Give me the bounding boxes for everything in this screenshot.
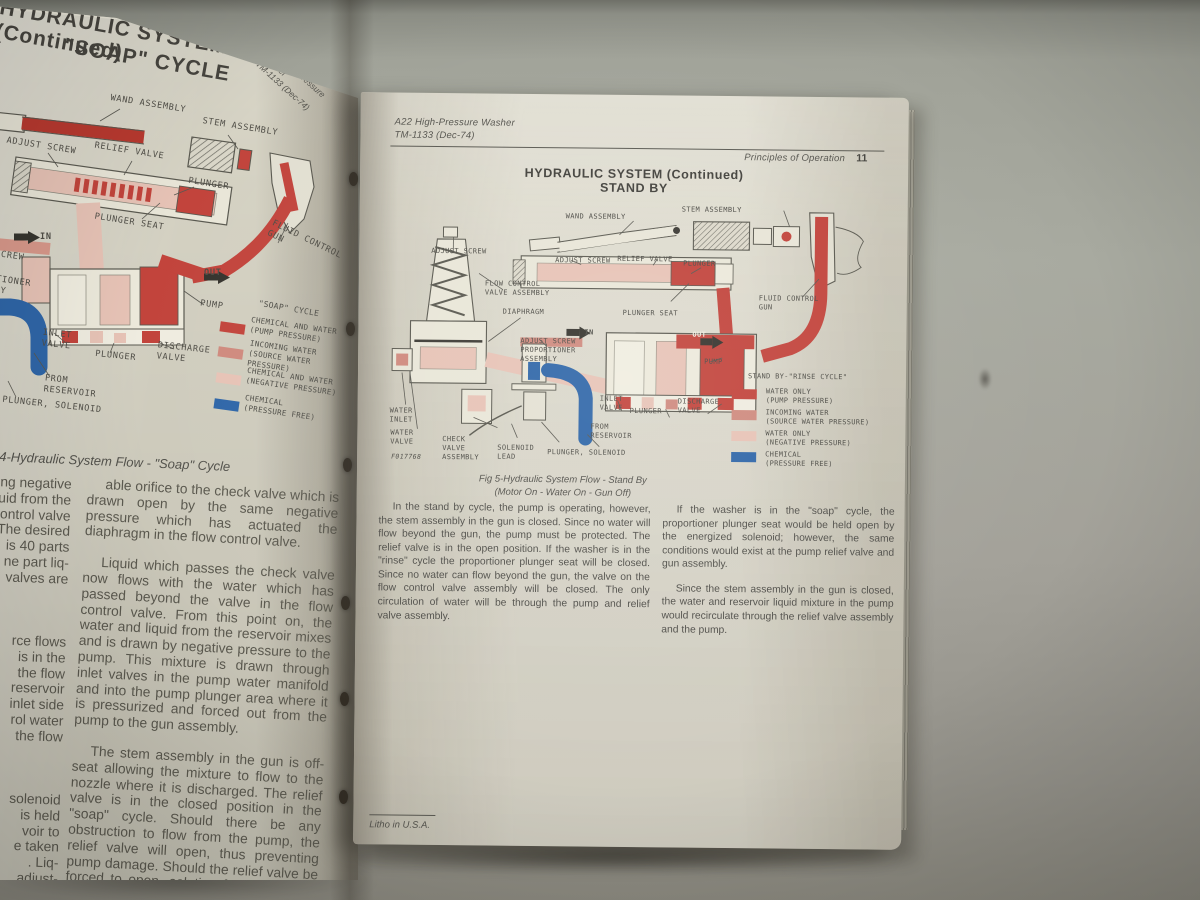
label-in-arrow: IN	[584, 329, 593, 338]
header-model: A22 High-Pressure Washer	[395, 117, 515, 129]
header-section: Principles of Operation	[744, 152, 845, 164]
label-water-valve: WATER VALVE	[390, 428, 413, 446]
left-page: HYDRAULIC SYSTEM (Continued) "SOAP" CYCL…	[0, 0, 358, 880]
legend-chip-mid	[732, 410, 757, 420]
label-stem-assembly: STEM ASSEMBLY	[682, 206, 742, 216]
binding-stitch	[343, 458, 352, 472]
binding-stitch	[346, 322, 355, 336]
figure-code: F017768	[391, 452, 421, 461]
legend-item-chemical: CHEMICAL (PRESSURE FREE)	[765, 450, 833, 470]
legend-item-incoming-water: INCOMING WATER (SOURCE WATER PRESSURE)	[765, 408, 869, 428]
label-inlet-valve: INLET VALVE	[41, 328, 73, 353]
label-inlet-valve: INLET VALVE	[600, 395, 623, 413]
label-water-inlet: WATER INLET	[389, 406, 412, 424]
label-out-arrow: OUT	[204, 268, 222, 279]
label-from-reservoir: FROM RESERVOIR	[590, 423, 632, 442]
right-page: A22 High-Pressure Washer TM-1133 (Dec-74…	[353, 92, 909, 850]
label-pump: PUMP	[704, 358, 723, 367]
label-adjust-screw-proportioner: ADJUST SCREW PROPORTIONER ASSEMBLY	[520, 337, 576, 365]
label-in-arrow: IN	[40, 232, 52, 243]
label-plunger: PLUNGER	[683, 260, 715, 269]
label-flow-control-valve-assembly: FLOW CONTROL VALVE ASSEMBLY	[485, 279, 550, 298]
label-diaphragm: DIAPHRAGM	[503, 308, 545, 318]
manual-photo: HYDRAULIC SYSTEM (Continued) "SOAP" CYCL…	[0, 0, 1200, 900]
page-number: 11	[856, 152, 867, 164]
binding-stitch	[340, 692, 349, 706]
label-plunger-solenoid: PLUNGER, SOLENOID	[547, 448, 626, 458]
right-column1-paragraph: In the stand by cycle, the pump is opera…	[377, 500, 650, 625]
label-check-valve-assembly: CHECK VALVE ASSEMBLY	[442, 435, 479, 463]
label-adjust-screw-relief: ADJUST SCREW	[555, 256, 610, 266]
legend-chip-light	[731, 431, 756, 441]
right-column2-paragraph-2: Since the stem assembly in the gun is cl…	[661, 582, 894, 639]
left-paragraph-2: Liquid which passes the check valve now …	[74, 554, 335, 742]
right-column2-paragraph-1: If the washer is in the "soap" cycle, th…	[662, 503, 895, 573]
standby-legend-title: STAND BY-"RINSE CYCLE"	[748, 372, 847, 382]
binding-stitch	[341, 596, 350, 610]
label-fluid-control-gun: FLUID CONTROL GUN	[759, 294, 819, 313]
binding-stitch	[349, 172, 358, 186]
legend-chip-blue	[731, 452, 756, 462]
label-wand-assembly: WAND ASSEMBLY	[566, 212, 626, 222]
footer-litho: Litho in U.S.A.	[369, 819, 430, 831]
label-out-arrow: OUT	[692, 331, 706, 340]
header-tm-number: TM-1133 (Dec-74)	[394, 130, 474, 142]
background-smudge	[978, 368, 992, 390]
left-paragraph-3: The stem assembly in the gun is off-seat…	[62, 743, 325, 900]
binding-stitch	[339, 790, 348, 804]
legend-item-water-only-pump: WATER ONLY (PUMP PRESSURE)	[766, 387, 834, 407]
label-plunger-2: PLUNGER	[630, 407, 662, 416]
label-adjust-screw-flow: ADJUST SCREW	[431, 247, 486, 257]
label-discharge-valve: DISCHARGE VALVE	[678, 397, 720, 416]
label-plunger-seat: PLUNGER SEAT	[623, 309, 678, 319]
legend-chip-red	[732, 389, 757, 399]
label-relief-valve: RELIEF VALVE	[617, 255, 672, 265]
left-paragraph-1: able orifice to the check valve which is…	[84, 476, 339, 553]
legend-item-water-only-negative: WATER ONLY (NEGATIVE PRESSURE)	[765, 429, 851, 449]
label-solenoid-lead: SOLENOID LEAD	[497, 444, 534, 463]
